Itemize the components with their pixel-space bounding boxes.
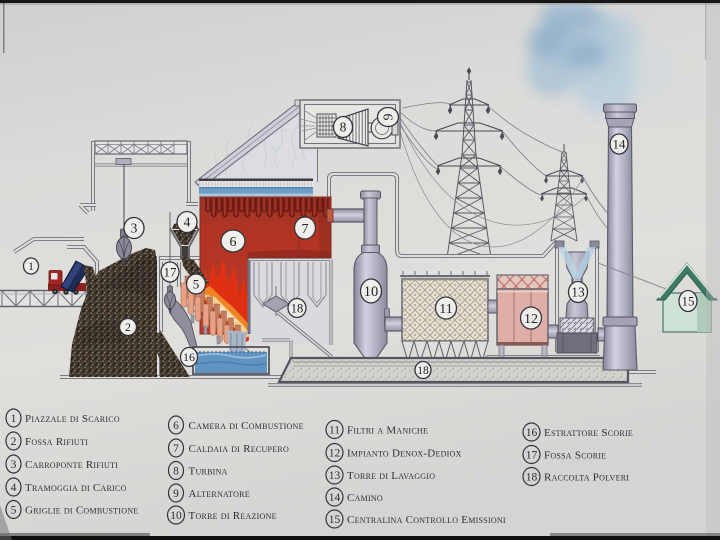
svg-text:10: 10 [170, 510, 182, 522]
svg-text:17: 17 [164, 265, 178, 280]
svg-text:2: 2 [11, 436, 17, 448]
svg-text:Camino: Camino [347, 492, 383, 504]
svg-text:Fossa Rifiuti: Fossa Rifiuti [25, 436, 88, 448]
svg-text:Centralina Controllo Emissioni: Centralina Controllo Emissioni [347, 514, 506, 526]
svg-text:13: 13 [571, 285, 585, 300]
svg-text:11: 11 [329, 425, 340, 437]
svg-text:4: 4 [184, 215, 191, 230]
svg-text:Camera di Combustione: Camera di Combustione [189, 420, 304, 432]
svg-text:9: 9 [381, 113, 396, 120]
svg-text:Raccolta Polveri: Raccolta Polveri [544, 472, 629, 484]
svg-text:5: 5 [193, 277, 200, 292]
svg-text:9: 9 [173, 488, 179, 500]
svg-text:16: 16 [526, 427, 538, 439]
svg-text:Fossa Scorie: Fossa Scorie [544, 450, 606, 462]
svg-text:Griglie di Combustione: Griglie di Combustione [25, 505, 138, 517]
svg-text:Alternatore: Alternatore [189, 488, 250, 500]
svg-text:Impianto Denox-Dediox: Impianto Denox-Dediox [347, 448, 462, 460]
svg-text:6: 6 [173, 420, 179, 432]
svg-text:Filtri a Maniche: Filtri a Maniche [347, 425, 428, 437]
svg-text:17: 17 [526, 450, 538, 462]
svg-text:7: 7 [302, 222, 309, 237]
svg-text:Carroponte Rifiuti: Carroponte Rifiuti [25, 459, 118, 471]
svg-text:4: 4 [11, 482, 17, 494]
svg-text:Torre di Reazione: Torre di Reazione [189, 510, 277, 522]
svg-text:Turbina: Turbina [189, 466, 228, 478]
svg-text:16: 16 [183, 350, 195, 364]
svg-text:3: 3 [11, 459, 17, 471]
svg-text:8: 8 [173, 466, 179, 478]
svg-text:12: 12 [329, 448, 341, 460]
svg-text:14: 14 [613, 137, 627, 152]
svg-text:11: 11 [439, 302, 452, 317]
svg-text:5: 5 [11, 505, 17, 517]
svg-text:1: 1 [28, 261, 34, 273]
svg-text:15: 15 [329, 514, 341, 526]
svg-text:18: 18 [417, 365, 429, 377]
svg-text:8: 8 [340, 120, 347, 135]
svg-text:6: 6 [230, 235, 237, 250]
svg-text:2: 2 [125, 320, 131, 334]
svg-text:Caldaia di Recupero: Caldaia di Recupero [189, 443, 289, 455]
svg-text:Estrattore Scorie: Estrattore Scorie [544, 427, 633, 439]
svg-text:14: 14 [329, 492, 341, 504]
svg-text:12: 12 [524, 312, 538, 327]
svg-text:1: 1 [11, 413, 17, 425]
svg-text:3: 3 [131, 221, 138, 236]
svg-text:10: 10 [364, 284, 379, 300]
svg-text:Tramoggia di Carico: Tramoggia di Carico [25, 482, 127, 494]
svg-text:13: 13 [329, 470, 341, 482]
svg-text:Torre di Lavaggio: Torre di Lavaggio [347, 470, 435, 482]
svg-text:Piazzale di Scarico: Piazzale di Scarico [25, 413, 120, 425]
svg-text:18: 18 [526, 472, 538, 484]
svg-text:7: 7 [173, 443, 179, 455]
svg-text:15: 15 [682, 294, 695, 309]
svg-text:18: 18 [291, 301, 304, 315]
